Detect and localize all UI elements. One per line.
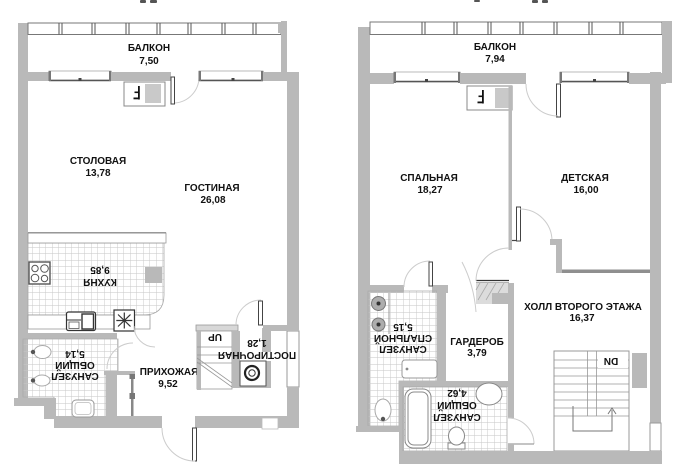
svg-text:БАЛКОН: БАЛКОН — [128, 43, 170, 54]
svg-text:САНУЗЕЛ: САНУЗЕЛ — [51, 370, 99, 381]
svg-text:ПРИХОЖАЯ: ПРИХОЖАЯ — [140, 367, 199, 378]
svg-text:16,37: 16,37 — [569, 313, 594, 324]
svg-text:ГОСТИНАЯ: ГОСТИНАЯ — [184, 183, 239, 194]
svg-text:13,78: 13,78 — [85, 168, 110, 179]
svg-text:СПАЛЬНАЯ: СПАЛЬНАЯ — [400, 173, 458, 184]
svg-text:ГАРДЕРОБ: ГАРДЕРОБ — [450, 337, 504, 348]
svg-text:ДЕТСКАЯ: ДЕТСКАЯ — [561, 173, 609, 184]
svg-text:ХОЛЛ ВТОРОГО ЭТАЖА: ХОЛЛ ВТОРОГО ЭТАЖА — [524, 302, 642, 313]
svg-text:5,14: 5,14 — [65, 348, 85, 359]
svg-text:18,27: 18,27 — [417, 185, 442, 196]
svg-text:БАЛКОН: БАЛКОН — [474, 42, 516, 53]
svg-text:26,08: 26,08 — [200, 195, 225, 206]
svg-text:СПАЛЬНОЙ: СПАЛЬНОЙ — [374, 332, 432, 345]
svg-text:9,85: 9,85 — [90, 264, 110, 275]
svg-text:DN: DN — [604, 355, 618, 366]
svg-text:САНУЗЕЛ: САНУЗЕЛ — [379, 343, 427, 354]
svg-text:16,00: 16,00 — [573, 185, 598, 196]
svg-text:7,50: 7,50 — [139, 56, 159, 67]
svg-text:3,79: 3,79 — [467, 348, 487, 359]
svg-text:UP: UP — [208, 331, 222, 342]
svg-text:9,52: 9,52 — [158, 379, 178, 390]
svg-text:ОБЩИЙ: ОБЩИЙ — [437, 399, 477, 412]
svg-text:7,94: 7,94 — [485, 54, 505, 65]
svg-text:СТОЛОВАЯ: СТОЛОВАЯ — [70, 156, 126, 167]
svg-text:ОБЩИЙ: ОБЩИЙ — [55, 359, 95, 372]
svg-text:САНУЗЕЛ: САНУЗЕЛ — [433, 411, 481, 422]
svg-text:КУХНЯ: КУХНЯ — [83, 276, 117, 287]
svg-text:ПОСТИРОЧНАЯ: ПОСТИРОЧНАЯ — [218, 349, 296, 360]
svg-text:1,28: 1,28 — [247, 337, 267, 348]
svg-text:5,15: 5,15 — [393, 321, 413, 332]
svg-text:4,62: 4,62 — [447, 387, 467, 398]
